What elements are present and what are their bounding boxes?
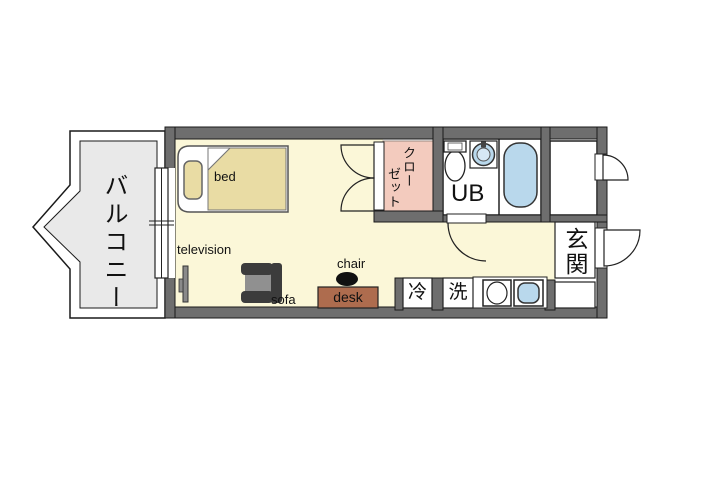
bed-label: bed <box>214 170 236 183</box>
closet-door-opening <box>374 142 384 210</box>
storage-door <box>595 154 628 180</box>
shoe-cabinet <box>555 282 595 308</box>
toilet-lid-detail <box>448 143 462 150</box>
stove-icon <box>483 280 511 306</box>
bath-door-opening <box>447 214 486 223</box>
storage-room <box>550 141 597 215</box>
kitchen-counter <box>473 277 547 308</box>
closet-label-line2: ゼット <box>387 167 400 209</box>
wall-below-closet <box>374 211 443 222</box>
wall-bath-storage <box>541 127 550 222</box>
wall-bottom <box>165 307 607 318</box>
refrigerator-label: 冷 <box>403 283 432 302</box>
wall-stub-washer <box>432 278 443 310</box>
chair-icon <box>336 272 358 286</box>
unit-bath-label: UB <box>451 182 484 206</box>
bath-sink-icon <box>470 141 497 168</box>
wall-closet-bath <box>433 127 443 222</box>
sofa-arm-bottom <box>241 291 273 303</box>
closet-label-line1: クロー <box>402 146 415 188</box>
sink-tap <box>481 142 486 148</box>
sofa-arm-top <box>241 263 273 275</box>
sofa-label: sofa <box>271 293 296 306</box>
floor-plan: バルコニー bed television sofa chair desk クロー… <box>0 0 723 480</box>
television-label: television <box>177 243 231 256</box>
entrance-door-arc <box>604 230 640 266</box>
bed-pillow <box>184 161 202 199</box>
wall-stub-fridge <box>395 278 403 310</box>
balcony-label: バルコニー <box>101 173 125 313</box>
chair-label: chair <box>337 257 365 270</box>
toilet-icon <box>444 141 466 181</box>
entrance-label: 玄関 <box>563 227 586 277</box>
storage-door-arc <box>603 155 628 180</box>
entrance-door <box>595 228 640 268</box>
toilet-bowl <box>445 151 465 181</box>
bathtub-icon <box>504 143 537 207</box>
desk-label: desk <box>318 290 378 304</box>
washing-machine-label: 洗 <box>443 283 473 302</box>
kitchen-sink-icon <box>514 280 543 306</box>
